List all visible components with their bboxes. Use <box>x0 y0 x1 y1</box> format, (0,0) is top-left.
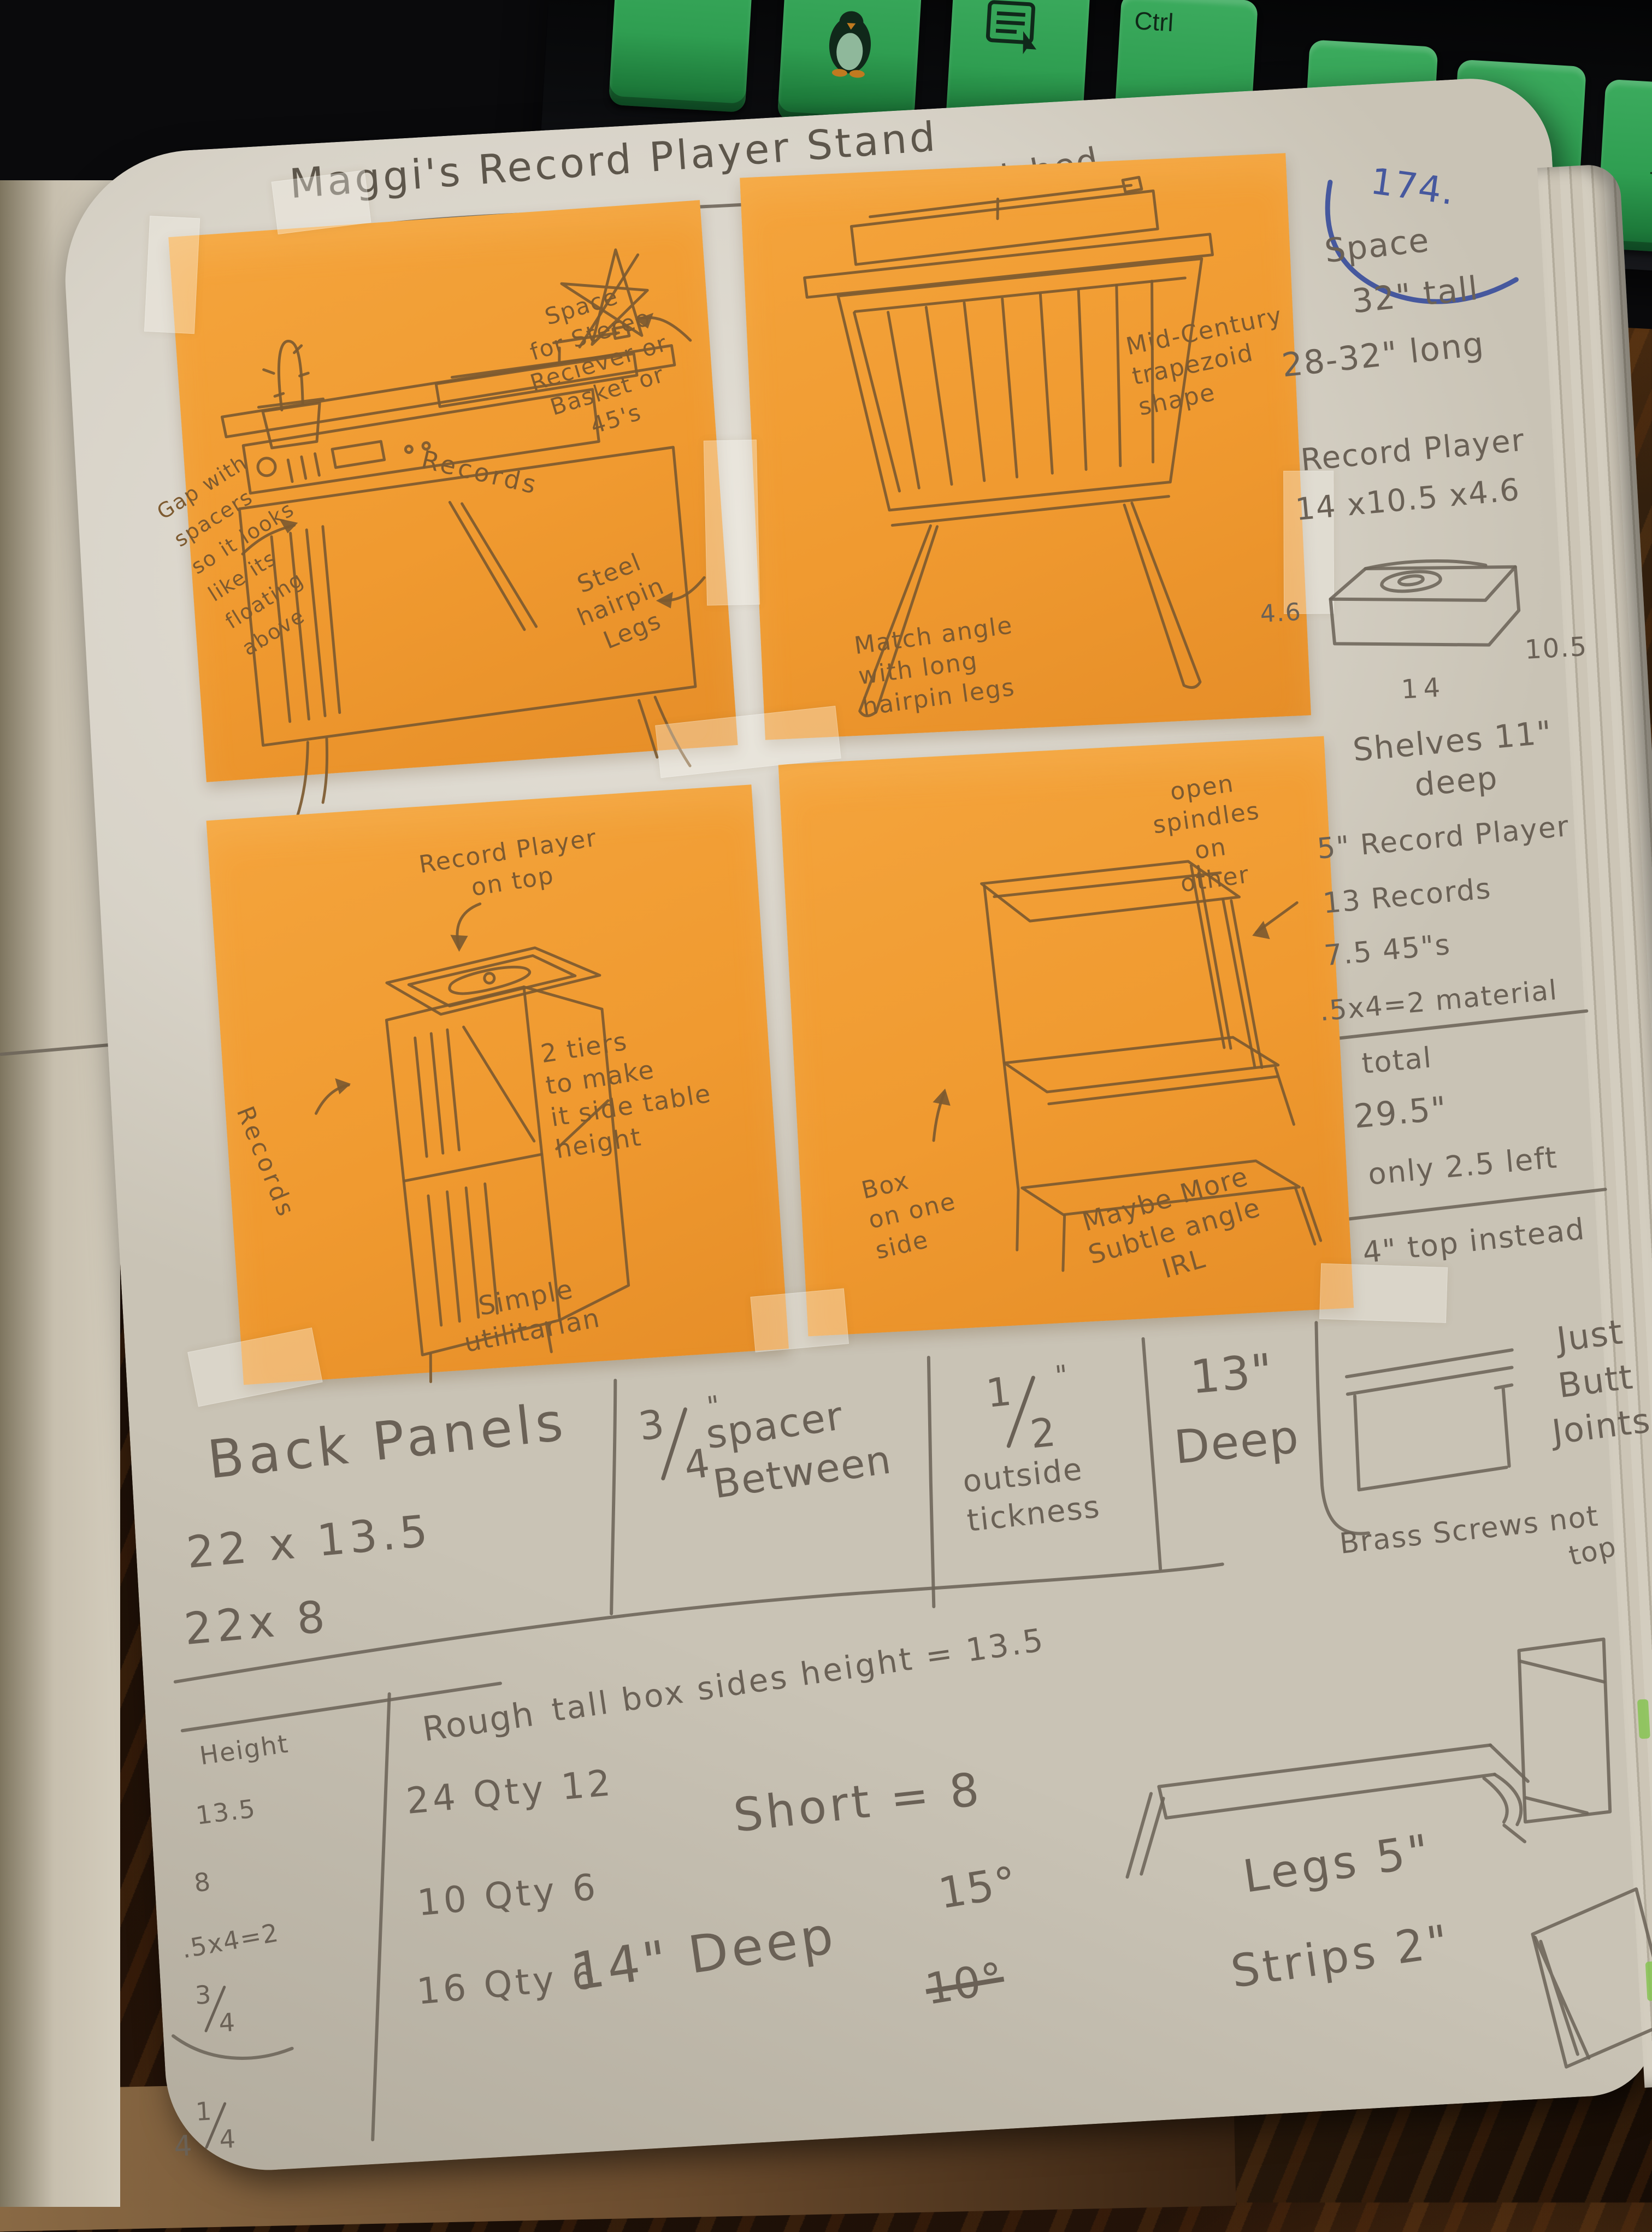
note-outside-thickness: 1 2 " outside tickness <box>951 1361 1027 1474</box>
note-13-deep-word: Deep <box>1172 1408 1302 1478</box>
sticky-note-column: Record Player on top 2 tiers to make it … <box>206 784 789 1385</box>
tape <box>1319 1263 1448 1323</box>
rp-depth-label: 10.5 <box>1524 630 1589 668</box>
strip-blank-sketch <box>1498 1873 1652 2074</box>
note-open-spindles: open spindles on other <box>1113 761 1303 907</box>
tape <box>704 440 760 606</box>
note-total-value: 29.5" <box>1352 1088 1449 1138</box>
key-alt: Alt <box>609 0 754 113</box>
bench-profile-sketch <box>1110 1711 1535 1920</box>
menu-icon <box>983 0 1046 56</box>
photo-canvas: Alt Fn Ctrl ← <box>0 0 1652 2203</box>
sticky-note-trapezoid: Mid-Century trapezoid shape Match angle … <box>740 153 1311 740</box>
rp-width-label: 14 <box>1400 671 1446 707</box>
sticky-note-open-shelf: open spindles on other Box on one side M… <box>778 736 1354 1337</box>
tape <box>144 216 200 334</box>
note-butt-joints: Just Butt Joints <box>1517 1304 1652 1459</box>
note-total-label: total <box>1360 1040 1433 1083</box>
key-tux <box>777 0 923 128</box>
cut-height-threequarters: 3 4 <box>194 1982 237 2039</box>
fraction-one-half: 1 2 " <box>984 1368 1059 1460</box>
sticky-note-credenza: Space for Stereo Reciever or Basket or 4… <box>168 200 737 782</box>
record-player-sketch <box>1297 532 1540 687</box>
cut-height-fourquarter: 414 <box>169 2062 238 2165</box>
fraction-one-quarter: 14 <box>195 2098 237 2155</box>
fraction-three-quarters: 3 4 " <box>636 1400 713 1493</box>
rp-height-label: 4.6 <box>1259 597 1302 630</box>
note-13-deep-value: 13" <box>1188 1341 1276 1407</box>
tape <box>750 1288 849 1352</box>
butt-joint-sketch <box>1337 1335 1526 1508</box>
tux-icon <box>821 0 880 79</box>
leg-blank-sketch <box>1495 1629 1637 1827</box>
notebook-page: Maggi's Record Player Stand Finished 5-1… <box>58 74 1652 2176</box>
